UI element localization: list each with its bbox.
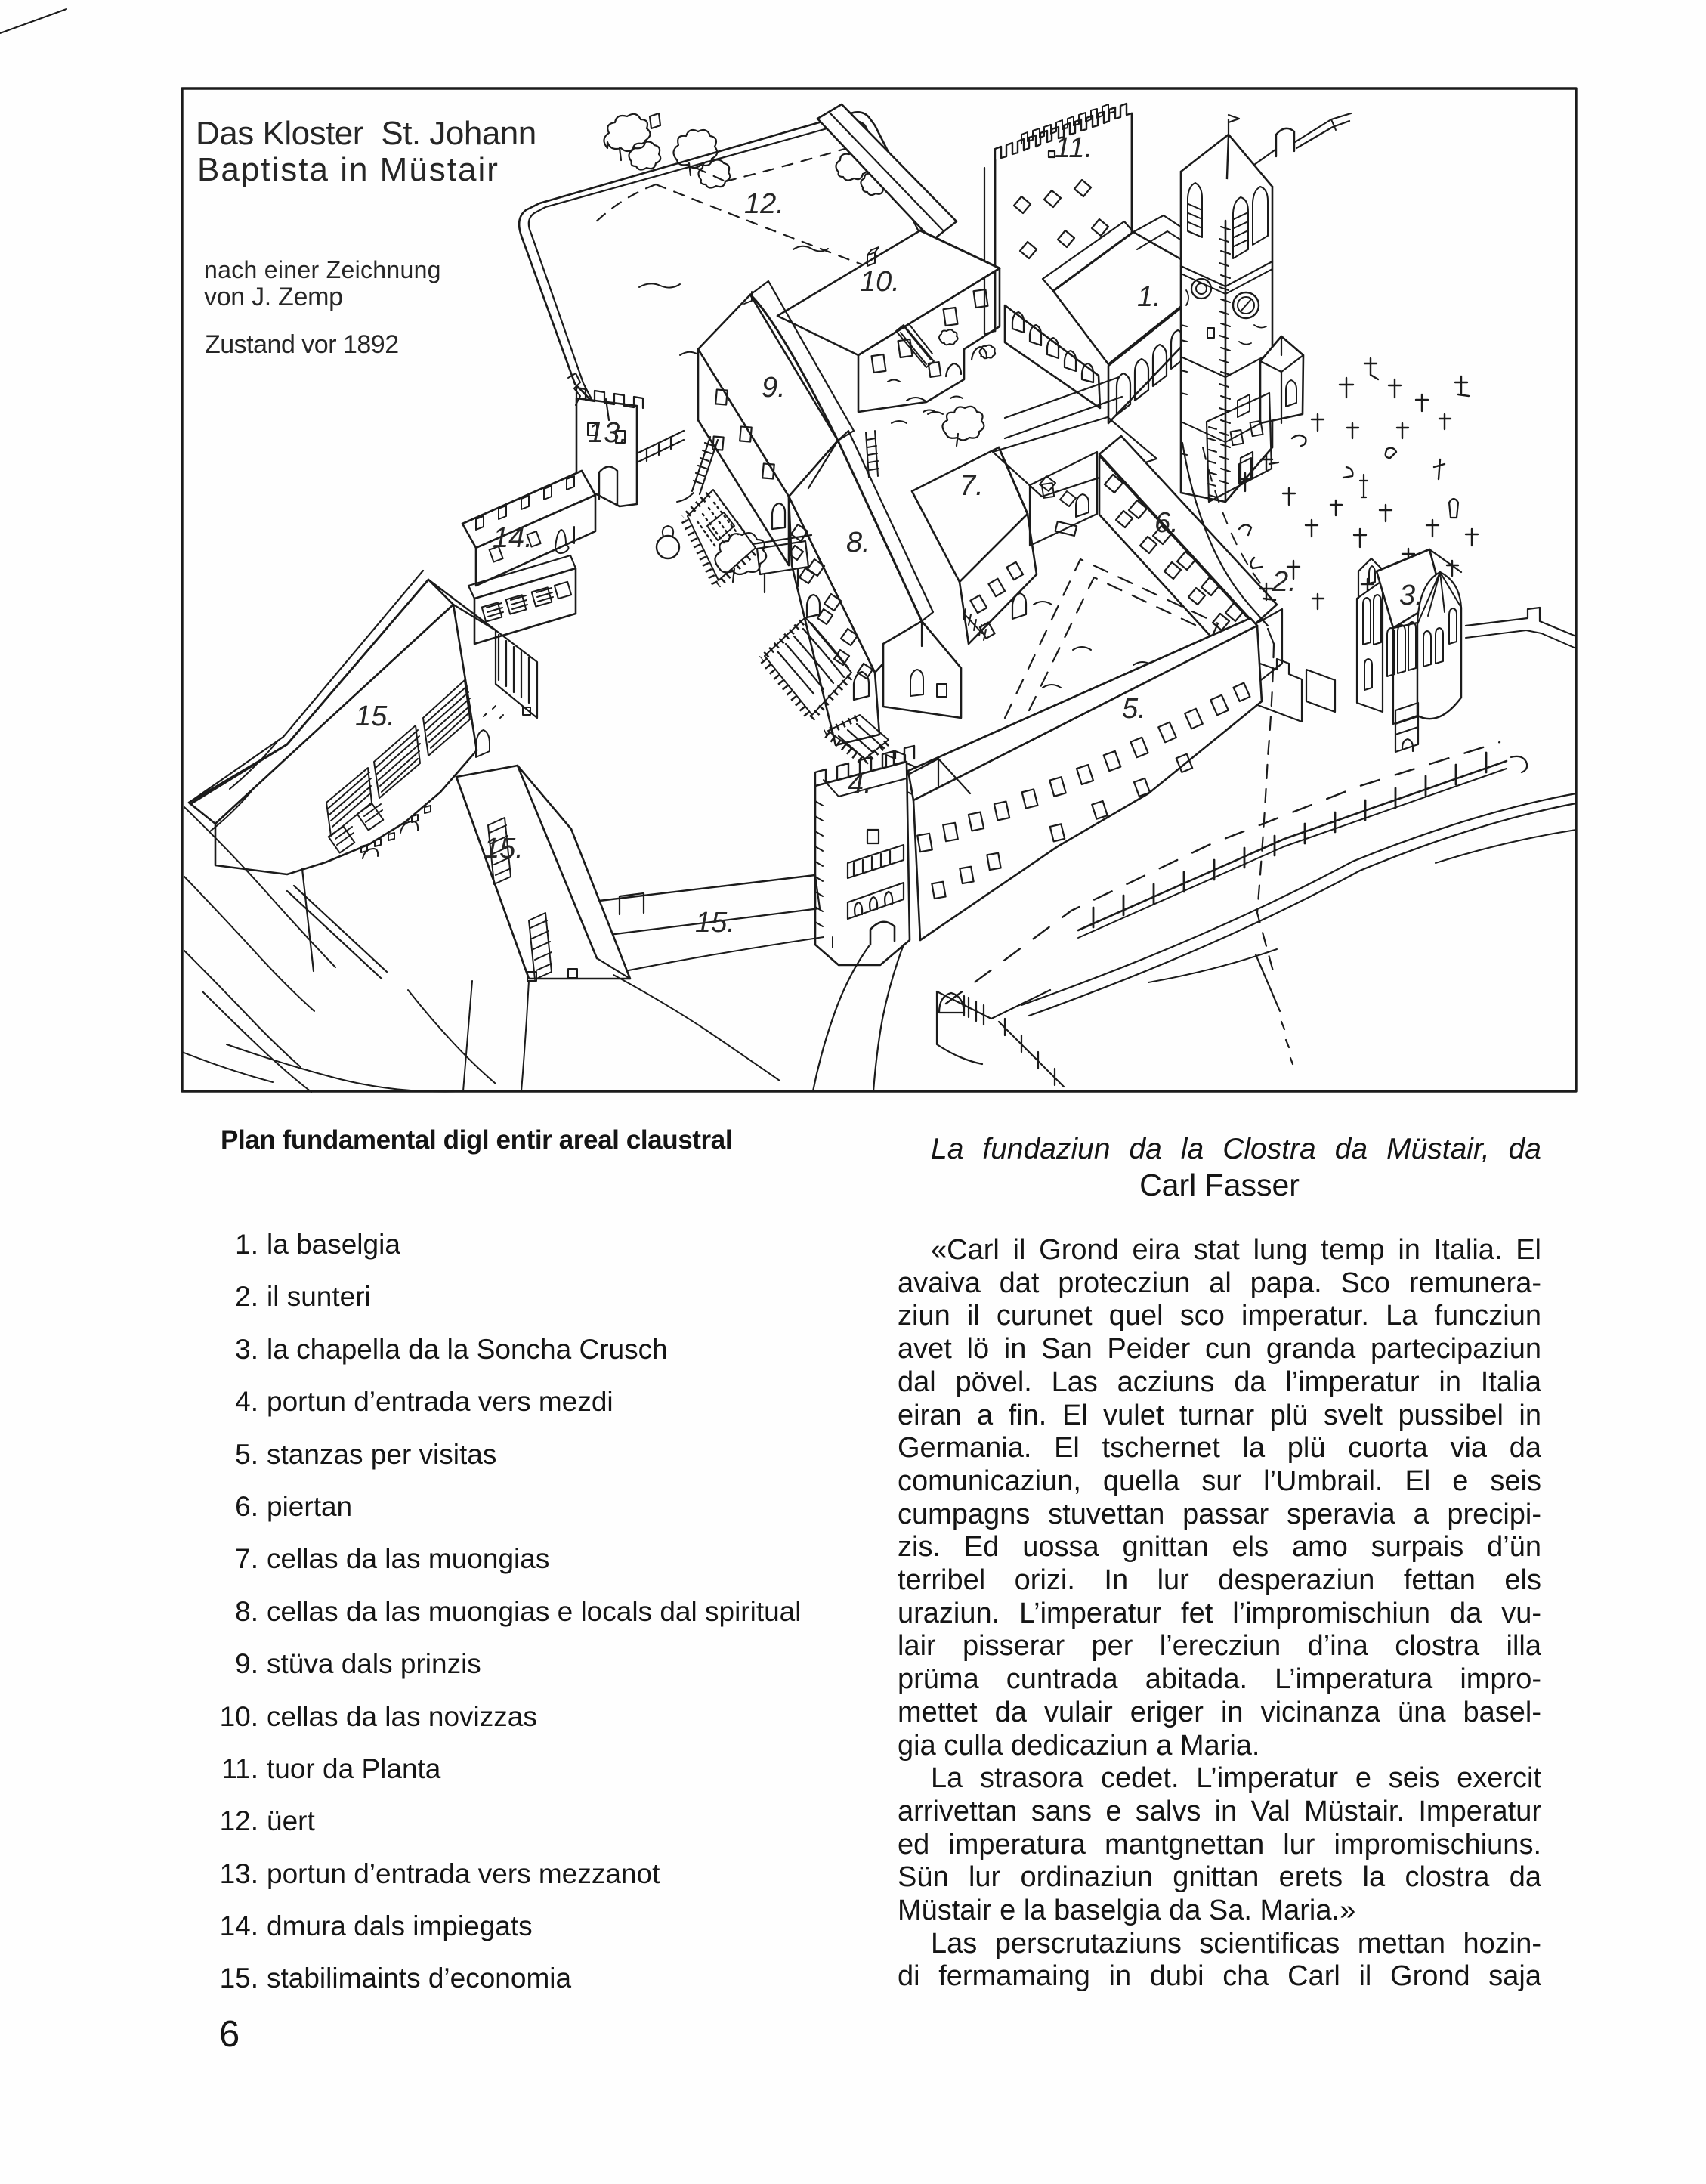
svg-text:13.: 13. (588, 417, 628, 449)
svg-text:15.: 15. (695, 907, 735, 939)
svg-text:14.: 14. (493, 522, 533, 554)
svg-text:15.: 15. (355, 701, 395, 732)
svg-text:12.: 12. (744, 188, 784, 220)
svg-text:2.: 2. (1272, 566, 1296, 598)
svg-text:10.: 10. (860, 266, 900, 298)
svg-text:15.: 15. (484, 833, 524, 865)
svg-text:8.: 8. (846, 527, 870, 558)
svg-text:5.: 5. (1122, 693, 1146, 725)
svg-text:11.: 11. (1055, 132, 1093, 164)
svg-text:1.: 1. (1137, 281, 1161, 313)
svg-text:6.: 6. (1154, 507, 1179, 539)
svg-text:3.: 3. (1399, 580, 1423, 611)
svg-text:7.: 7. (960, 470, 984, 502)
svg-text:9.: 9. (762, 372, 786, 404)
svg-text:4.: 4. (848, 769, 872, 800)
